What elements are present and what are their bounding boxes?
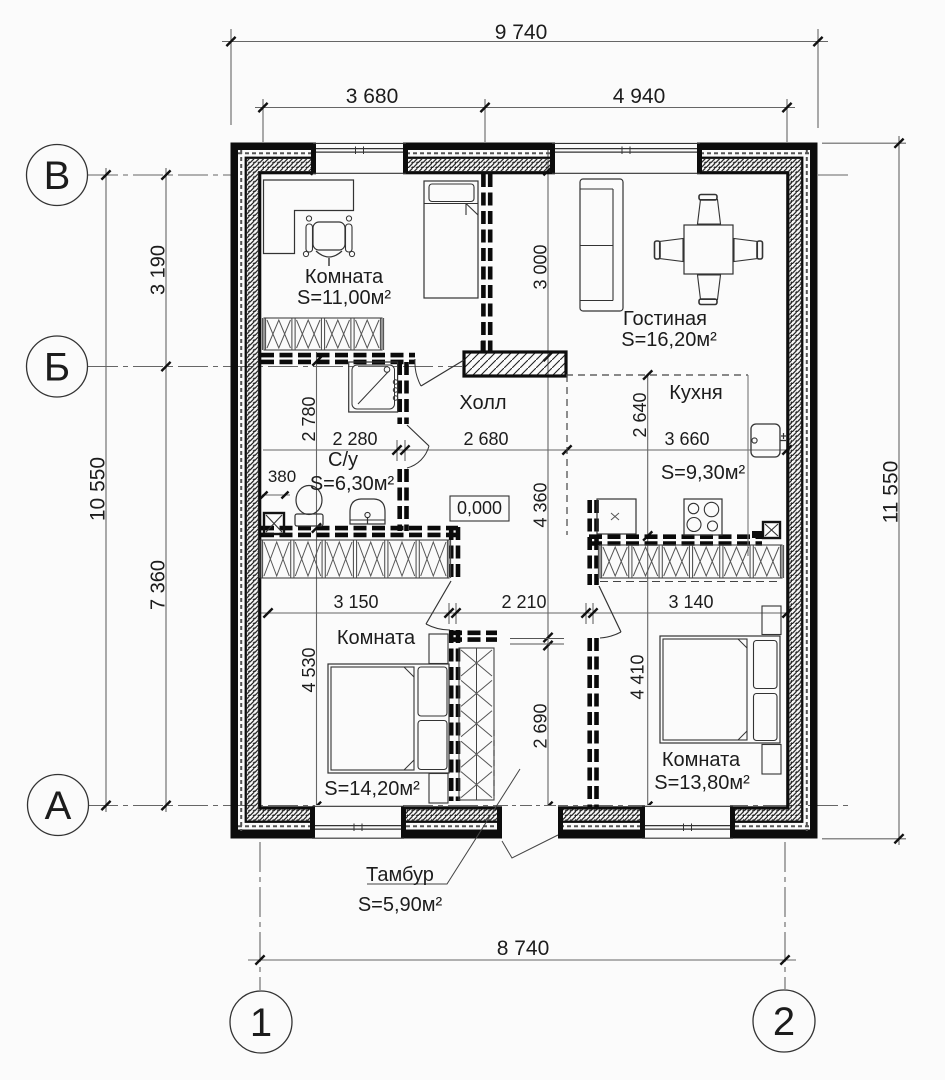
svg-text:2 690: 2 690 bbox=[531, 703, 551, 748]
svg-text:2: 2 bbox=[773, 1000, 795, 1044]
svg-text:3 000: 3 000 bbox=[531, 244, 551, 289]
svg-text:Комната: Комната bbox=[305, 266, 384, 288]
svg-text:Б: Б bbox=[44, 346, 70, 390]
svg-text:S=5,90м²: S=5,90м² bbox=[358, 894, 443, 916]
svg-text:S=13,80м²: S=13,80м² bbox=[654, 772, 750, 794]
svg-text:3 660: 3 660 bbox=[664, 429, 709, 449]
svg-text:4 940: 4 940 bbox=[613, 85, 666, 108]
svg-text:4 530: 4 530 bbox=[299, 647, 319, 692]
svg-text:10 550: 10 550 bbox=[87, 457, 110, 521]
svg-text:Холл: Холл bbox=[459, 392, 506, 414]
svg-text:11 550: 11 550 bbox=[880, 461, 903, 524]
svg-text:Комната: Комната bbox=[337, 627, 416, 649]
svg-text:3 680: 3 680 bbox=[346, 85, 399, 108]
svg-text:С/у: С/у bbox=[328, 449, 358, 471]
svg-text:3 140: 3 140 bbox=[668, 592, 713, 612]
svg-text:2 210: 2 210 bbox=[501, 592, 546, 612]
svg-text:0,000: 0,000 bbox=[457, 498, 502, 518]
svg-text:А: А bbox=[45, 784, 72, 828]
svg-text:2 280: 2 280 bbox=[332, 429, 377, 449]
svg-text:1: 1 bbox=[250, 1001, 272, 1045]
svg-text:2 640: 2 640 bbox=[630, 392, 650, 437]
svg-text:Гостиная: Гостиная bbox=[623, 308, 707, 330]
svg-text:4 360: 4 360 bbox=[531, 482, 551, 527]
svg-text:Комната: Комната bbox=[662, 749, 741, 771]
svg-text:Кухня: Кухня bbox=[669, 382, 723, 404]
svg-text:S=6,30м²: S=6,30м² bbox=[310, 473, 395, 495]
svg-text:S=16,20м²: S=16,20м² bbox=[621, 329, 717, 351]
svg-text:2 680: 2 680 bbox=[463, 429, 508, 449]
svg-text:2 780: 2 780 bbox=[299, 396, 319, 441]
svg-text:S=9,30м²: S=9,30м² bbox=[661, 462, 746, 484]
svg-text:Тамбур: Тамбур bbox=[366, 864, 434, 886]
svg-text:7 360: 7 360 bbox=[148, 560, 170, 610]
svg-text:В: В bbox=[44, 154, 71, 198]
svg-text:3 190: 3 190 bbox=[148, 245, 170, 295]
svg-text:8 740: 8 740 bbox=[497, 937, 550, 960]
svg-text:3 150: 3 150 bbox=[333, 592, 378, 612]
svg-text:S=11,00м²: S=11,00м² bbox=[297, 287, 391, 309]
svg-text:9 740: 9 740 bbox=[495, 21, 548, 44]
svg-text:4 410: 4 410 bbox=[628, 654, 648, 699]
svg-text:380: 380 bbox=[268, 467, 296, 486]
svg-text:S=14,20м²: S=14,20м² bbox=[324, 778, 420, 800]
